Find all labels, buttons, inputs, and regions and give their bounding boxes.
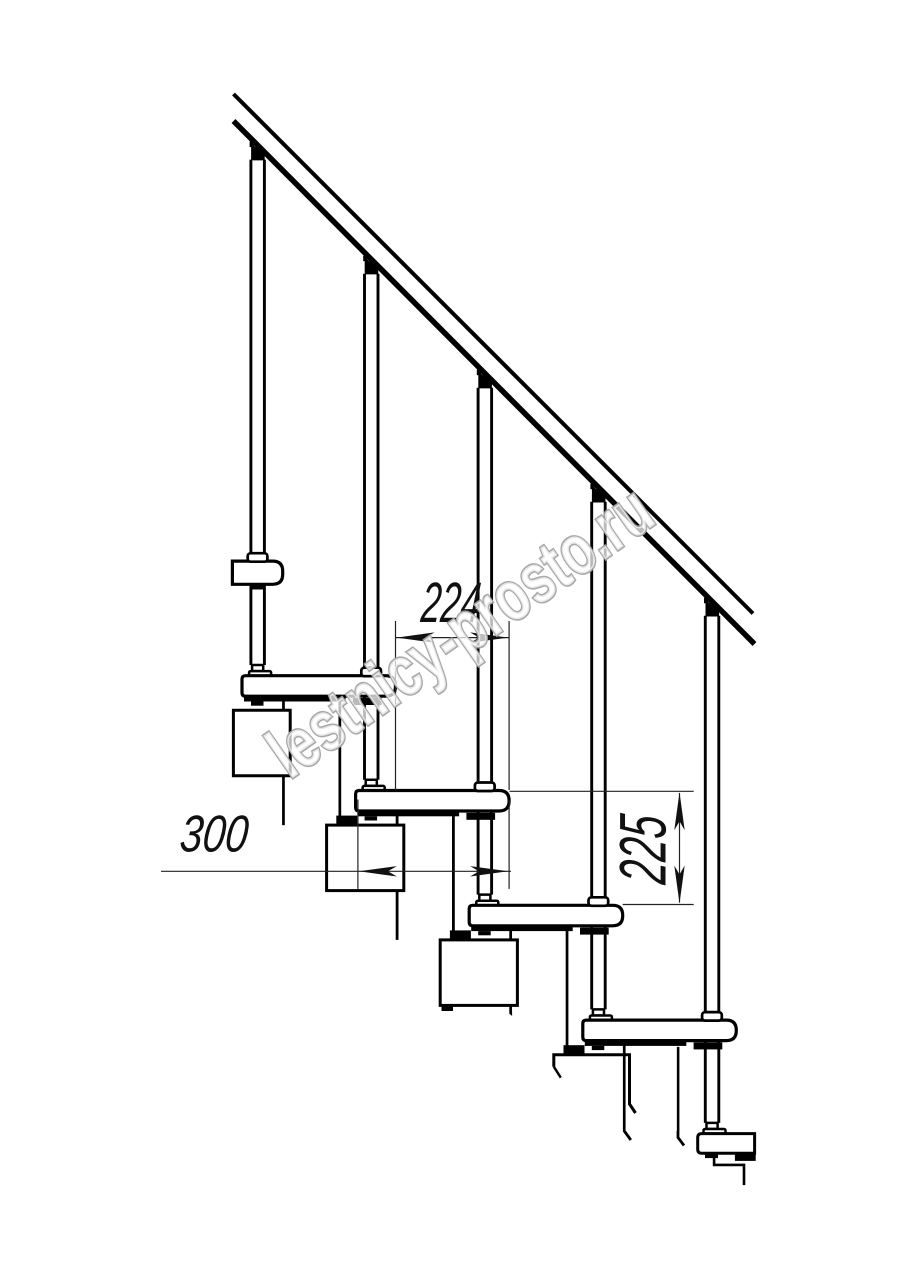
svg-text:225: 225 [606,811,680,887]
svg-text:300: 300 [177,805,251,863]
